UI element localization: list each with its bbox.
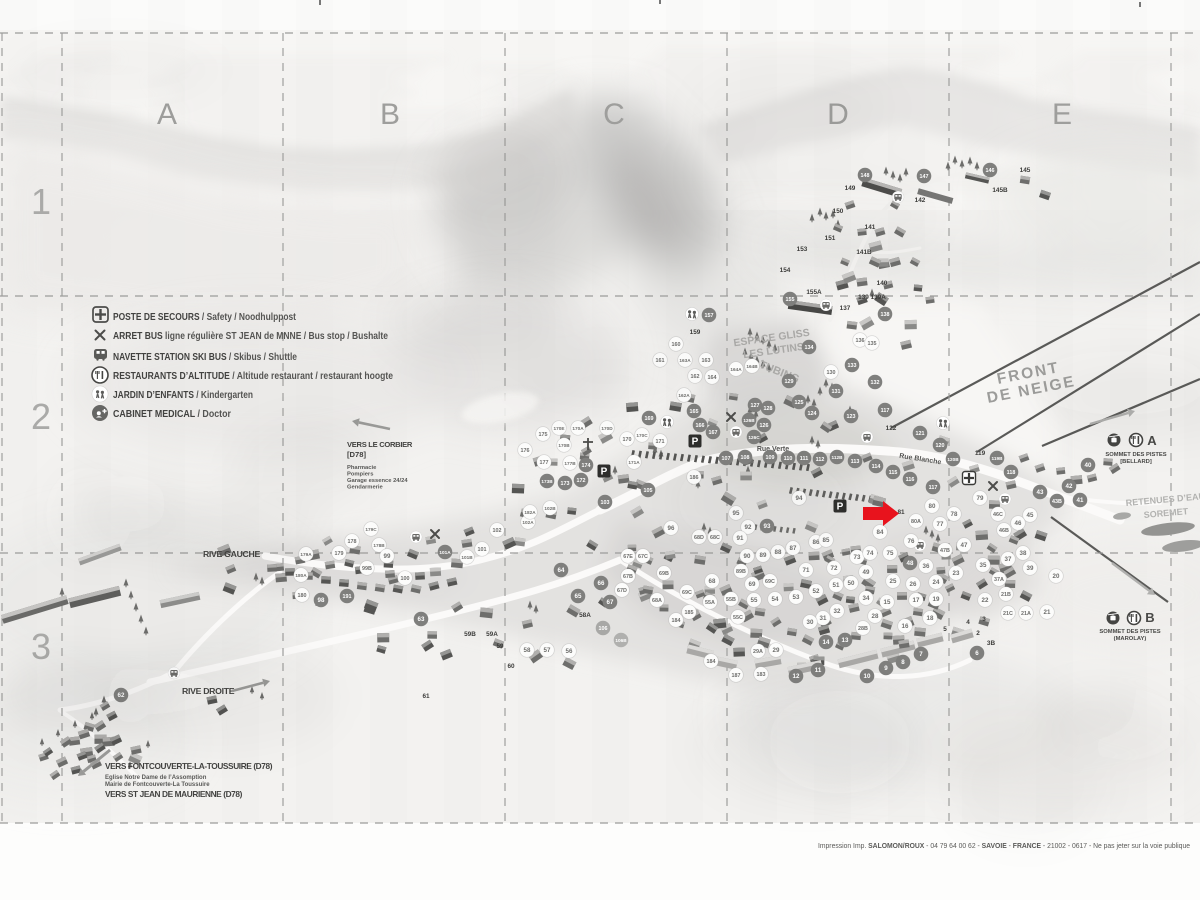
svg-text:51: 51 <box>833 582 840 589</box>
svg-text:68D: 68D <box>694 535 704 541</box>
svg-text:64: 64 <box>558 567 565 574</box>
svg-text:SOMMET DES PISTES: SOMMET DES PISTES <box>1105 452 1166 458</box>
svg-text:178B: 178B <box>373 543 385 548</box>
svg-text:84: 84 <box>877 529 884 536</box>
svg-text:101B: 101B <box>461 555 473 560</box>
svg-text:RESTAURANTS D’ALTITUDE / Altit: RESTAURANTS D’ALTITUDE / Altitude restau… <box>113 370 393 382</box>
svg-text:52: 52 <box>813 588 820 595</box>
svg-text:133: 133 <box>848 363 857 369</box>
svg-text:41: 41 <box>1077 497 1084 504</box>
svg-text:122: 122 <box>886 425 897 432</box>
svg-text:P: P <box>692 437 699 448</box>
svg-text:170B: 170B <box>558 443 570 448</box>
svg-text:103: 103 <box>601 500 610 506</box>
svg-text:96: 96 <box>668 525 675 532</box>
svg-text:118: 118 <box>1007 470 1016 476</box>
svg-text:11: 11 <box>815 667 822 674</box>
svg-text:55A: 55A <box>705 600 715 606</box>
svg-text:126B: 126B <box>743 418 755 423</box>
svg-text:79: 79 <box>977 495 984 502</box>
svg-text:10: 10 <box>864 673 871 680</box>
svg-text:75: 75 <box>887 550 894 557</box>
svg-text:57: 57 <box>544 647 551 654</box>
svg-text:170: 170 <box>623 437 632 443</box>
svg-text:68A: 68A <box>652 598 662 604</box>
svg-text:184: 184 <box>672 618 681 624</box>
svg-text:55: 55 <box>751 597 758 604</box>
svg-text:21B: 21B <box>1001 592 1011 598</box>
svg-text:18: 18 <box>927 615 934 622</box>
svg-text:4: 4 <box>966 619 970 626</box>
svg-text:VERS ST JEAN DE MAURIENNE (D78: VERS ST JEAN DE MAURIENNE (D78) <box>105 789 243 799</box>
svg-text:48: 48 <box>907 560 914 567</box>
svg-text:170E: 170E <box>554 426 565 431</box>
svg-text:66: 66 <box>598 580 605 587</box>
svg-text:Eglise Notre Dame de l’Assompt: Eglise Notre Dame de l’Assomption <box>105 775 207 781</box>
svg-text:134: 134 <box>805 345 814 351</box>
svg-text:59B: 59B <box>464 631 476 638</box>
svg-text:173B: 173B <box>541 479 553 484</box>
svg-text:136: 136 <box>856 338 865 344</box>
svg-text:69C: 69C <box>682 590 692 596</box>
svg-text:180A: 180A <box>295 573 307 578</box>
svg-text:SOMMET DES PISTES: SOMMET DES PISTES <box>1099 629 1160 635</box>
svg-text:175: 175 <box>539 432 548 438</box>
svg-text:178: 178 <box>348 539 357 545</box>
svg-text:[BELLARD]: [BELLARD] <box>1120 459 1152 465</box>
svg-text:140: 140 <box>877 280 888 287</box>
svg-text:126C: 126C <box>748 435 760 440</box>
svg-text:170A: 170A <box>572 426 584 431</box>
svg-text:49: 49 <box>863 569 870 576</box>
svg-text:102B: 102B <box>544 506 556 511</box>
svg-text:68: 68 <box>709 578 716 585</box>
svg-text:P: P <box>601 467 608 478</box>
svg-text:99B: 99B <box>362 566 372 572</box>
svg-text:67D: 67D <box>617 588 627 594</box>
svg-text:55B: 55B <box>726 597 736 603</box>
svg-text:125: 125 <box>795 400 804 406</box>
svg-text:58: 58 <box>524 647 531 654</box>
svg-text:128: 128 <box>764 406 773 412</box>
svg-text:63: 63 <box>418 616 425 623</box>
svg-text:17: 17 <box>913 597 920 604</box>
svg-text:43B: 43B <box>1052 499 1062 505</box>
svg-text:139 139A: 139 139A <box>858 294 886 301</box>
svg-text:129: 129 <box>785 379 794 385</box>
svg-text:164: 164 <box>708 375 717 381</box>
svg-text:163: 163 <box>702 358 711 364</box>
svg-text:111: 111 <box>800 456 808 462</box>
svg-text:145B: 145B <box>992 187 1008 194</box>
svg-text:117: 117 <box>929 485 938 491</box>
svg-text:145: 145 <box>1020 167 1031 174</box>
svg-text:100: 100 <box>401 576 410 582</box>
svg-text:177: 177 <box>540 460 549 466</box>
svg-text:8: 8 <box>901 659 905 666</box>
svg-text:159: 159 <box>690 329 701 336</box>
svg-text:74: 74 <box>867 550 874 557</box>
svg-text:99: 99 <box>384 553 391 560</box>
svg-text:120B: 120B <box>947 457 959 462</box>
svg-text:71: 71 <box>803 567 810 574</box>
svg-text:187: 187 <box>732 673 741 679</box>
svg-text:26: 26 <box>910 581 917 588</box>
svg-text:5: 5 <box>943 626 947 633</box>
svg-text:176: 176 <box>521 448 530 454</box>
svg-text:164B: 164B <box>746 364 758 369</box>
svg-text:21: 21 <box>1044 609 1051 616</box>
svg-text:124: 124 <box>808 411 817 417</box>
svg-text:180: 180 <box>298 593 307 599</box>
svg-text:116: 116 <box>906 477 915 483</box>
svg-text:24: 24 <box>933 579 940 586</box>
svg-text:16: 16 <box>902 623 909 630</box>
svg-text:42: 42 <box>1066 483 1073 490</box>
svg-text:171: 171 <box>656 439 665 445</box>
svg-text:179C: 179C <box>365 527 377 532</box>
svg-text:A: A <box>157 98 177 131</box>
svg-text:137: 137 <box>840 305 851 312</box>
svg-text:CABINET MEDICAL / Doctor: CABINET MEDICAL / Doctor <box>113 408 231 420</box>
svg-text:JARDIN D’ENFANTS / Kindergarte: JARDIN D’ENFANTS / Kindergarten <box>113 389 253 401</box>
svg-text:155: 155 <box>786 297 795 303</box>
svg-text:69C: 69C <box>765 579 775 585</box>
svg-text:32: 32 <box>834 608 841 615</box>
svg-text:3: 3 <box>982 616 986 623</box>
svg-text:123: 123 <box>847 414 856 420</box>
svg-text:88: 88 <box>775 549 782 556</box>
svg-text:112: 112 <box>816 457 825 463</box>
svg-text:12: 12 <box>793 673 800 680</box>
svg-text:47B: 47B <box>940 548 950 554</box>
svg-text:22: 22 <box>982 597 989 604</box>
svg-text:C: C <box>603 98 625 131</box>
svg-text:135: 135 <box>868 341 877 347</box>
svg-text:174: 174 <box>582 463 591 469</box>
svg-text:101: 101 <box>478 547 487 553</box>
svg-text:46B: 46B <box>999 528 1009 534</box>
svg-text:98: 98 <box>318 597 325 604</box>
svg-text:85: 85 <box>823 537 830 544</box>
svg-text:101A: 101A <box>439 550 451 555</box>
svg-text:45: 45 <box>1027 512 1034 519</box>
svg-text:14: 14 <box>823 639 830 646</box>
svg-text:36: 36 <box>923 563 930 570</box>
svg-text:6: 6 <box>975 650 979 657</box>
svg-text:50: 50 <box>848 580 855 587</box>
svg-text:40: 40 <box>1085 462 1092 469</box>
svg-text:171A: 171A <box>628 460 640 465</box>
svg-text:38: 38 <box>1020 550 1027 557</box>
svg-text:2: 2 <box>976 630 980 637</box>
svg-text:78: 78 <box>951 511 958 518</box>
svg-text:113: 113 <box>851 459 860 465</box>
svg-text:69: 69 <box>749 581 756 588</box>
svg-text:55C: 55C <box>733 615 743 621</box>
svg-text:127: 127 <box>751 403 760 409</box>
svg-text:155A: 155A <box>806 289 822 296</box>
svg-text:VERS FONTCOUVERTE-LA-TOUSSUIRE: VERS FONTCOUVERTE-LA-TOUSSUIRE (D78) <box>105 761 273 771</box>
svg-text:131: 131 <box>832 389 841 395</box>
svg-text:37: 37 <box>1005 556 1012 563</box>
svg-text:30: 30 <box>807 619 814 626</box>
svg-text:115: 115 <box>889 470 898 476</box>
svg-text:23: 23 <box>953 570 960 577</box>
svg-text:81: 81 <box>897 509 905 516</box>
svg-text:117: 117 <box>881 408 890 414</box>
svg-text:1: 1 <box>31 181 51 222</box>
svg-text:89: 89 <box>760 552 767 559</box>
svg-text:67: 67 <box>607 599 614 606</box>
svg-text:102: 102 <box>493 528 502 534</box>
svg-text:102A: 102A <box>522 520 534 525</box>
svg-text:59: 59 <box>496 643 504 650</box>
svg-text:126: 126 <box>760 423 769 429</box>
svg-text:67C: 67C <box>638 554 648 560</box>
svg-text:164A: 164A <box>730 367 742 372</box>
svg-text:169: 169 <box>645 416 654 422</box>
svg-text:138: 138 <box>881 312 890 318</box>
svg-text:28: 28 <box>872 613 879 620</box>
svg-text:105: 105 <box>644 488 653 494</box>
svg-text:15: 15 <box>884 599 891 606</box>
svg-text:160: 160 <box>672 342 681 348</box>
svg-text:7: 7 <box>919 651 923 658</box>
svg-text:166: 166 <box>696 423 705 429</box>
svg-text:9: 9 <box>884 665 888 672</box>
svg-text:177B: 177B <box>564 461 576 466</box>
svg-text:114: 114 <box>872 464 881 470</box>
svg-text:167: 167 <box>709 430 718 436</box>
svg-text:65: 65 <box>575 593 582 600</box>
svg-text:184: 184 <box>707 659 716 665</box>
svg-text:56: 56 <box>566 648 573 655</box>
svg-text:B: B <box>1145 610 1154 625</box>
svg-text:13: 13 <box>842 637 849 644</box>
svg-text:39: 39 <box>1027 565 1034 572</box>
svg-text:146: 146 <box>986 168 995 174</box>
svg-text:89B: 89B <box>736 569 746 575</box>
svg-text:80A: 80A <box>911 519 921 525</box>
svg-text:191: 191 <box>343 594 352 600</box>
svg-text:121: 121 <box>916 431 925 437</box>
svg-text:90: 90 <box>744 553 751 560</box>
svg-text:47: 47 <box>961 542 968 549</box>
svg-text:112B: 112B <box>832 455 844 460</box>
svg-text:182A: 182A <box>524 510 536 515</box>
svg-text:21A: 21A <box>1021 611 1031 617</box>
svg-text:POSTE DE SECOURS / Safety / No: POSTE DE SECOURS / Safety / Noodhulppost <box>113 311 296 323</box>
svg-text:165: 165 <box>690 409 699 415</box>
svg-text:37A: 37A <box>994 577 1004 583</box>
svg-text:76: 76 <box>908 538 915 545</box>
svg-text:77: 77 <box>937 521 944 528</box>
svg-text:54: 54 <box>772 596 779 603</box>
svg-text:72: 72 <box>831 565 838 572</box>
svg-text:46: 46 <box>1015 520 1022 527</box>
svg-text:170C: 170C <box>636 433 648 438</box>
svg-text:Impression Imp. SALOMON/ROUX -: Impression Imp. SALOMON/ROUX - 04 79 64 … <box>818 841 1190 850</box>
svg-text:119: 119 <box>975 450 986 457</box>
svg-text:25: 25 <box>890 578 897 585</box>
svg-text:170D: 170D <box>601 426 613 431</box>
svg-text:2: 2 <box>31 396 51 437</box>
svg-text:154: 154 <box>780 267 791 274</box>
svg-text:106: 106 <box>599 626 608 632</box>
svg-text:69B: 69B <box>659 571 669 577</box>
svg-text:31: 31 <box>820 615 827 622</box>
svg-text:157: 157 <box>705 313 714 319</box>
svg-text:185: 185 <box>685 610 694 616</box>
svg-text:179A: 179A <box>300 552 312 557</box>
svg-text:60: 60 <box>507 663 515 670</box>
svg-text:67E: 67E <box>623 554 633 560</box>
svg-text:67B: 67B <box>623 574 633 580</box>
svg-text:130: 130 <box>827 370 836 376</box>
svg-text:179: 179 <box>335 551 344 557</box>
svg-text:172: 172 <box>577 478 586 484</box>
svg-text:21C: 21C <box>1003 611 1013 617</box>
svg-text:59A: 59A <box>486 631 498 638</box>
svg-text:46C: 46C <box>993 512 1003 518</box>
svg-text:58A: 58A <box>579 612 591 619</box>
svg-text:120: 120 <box>936 443 945 449</box>
svg-text:106B: 106B <box>615 638 627 643</box>
svg-text:20: 20 <box>1053 573 1060 580</box>
svg-text:34: 34 <box>863 595 870 602</box>
svg-text:80: 80 <box>929 503 936 510</box>
svg-text:53: 53 <box>793 594 800 601</box>
svg-text:NAVETTE STATION SKI BUS / Skib: NAVETTE STATION SKI BUS / Skibus / Shutt… <box>113 351 297 363</box>
svg-text:B: B <box>380 98 400 131</box>
svg-text:43: 43 <box>1037 489 1044 496</box>
svg-text:ARRET BUS ligne régulière ST: ARRET BUS ligne régulière ST JEAN de MNN… <box>113 330 388 342</box>
svg-text:29: 29 <box>773 647 780 654</box>
svg-text:(MAROLAY): (MAROLAY) <box>1114 636 1147 642</box>
svg-text:61: 61 <box>422 693 430 700</box>
svg-text:87: 87 <box>790 545 797 552</box>
svg-text:183: 183 <box>757 672 766 678</box>
svg-text:119B: 119B <box>992 456 1004 461</box>
svg-text:73: 73 <box>854 554 861 561</box>
svg-text:132: 132 <box>871 380 880 386</box>
svg-text:3B: 3B <box>987 640 996 647</box>
svg-text:29A: 29A <box>753 649 763 655</box>
svg-text:28B: 28B <box>858 626 868 632</box>
svg-text:147: 147 <box>920 174 929 180</box>
svg-text:35: 35 <box>980 562 987 569</box>
svg-text:Mairie de Fontcouverte-La Tous: Mairie de Fontcouverte-La Toussuire <box>105 782 210 788</box>
svg-text:173: 173 <box>561 481 570 487</box>
svg-text:19: 19 <box>933 596 940 603</box>
svg-text:E: E <box>1052 98 1072 131</box>
